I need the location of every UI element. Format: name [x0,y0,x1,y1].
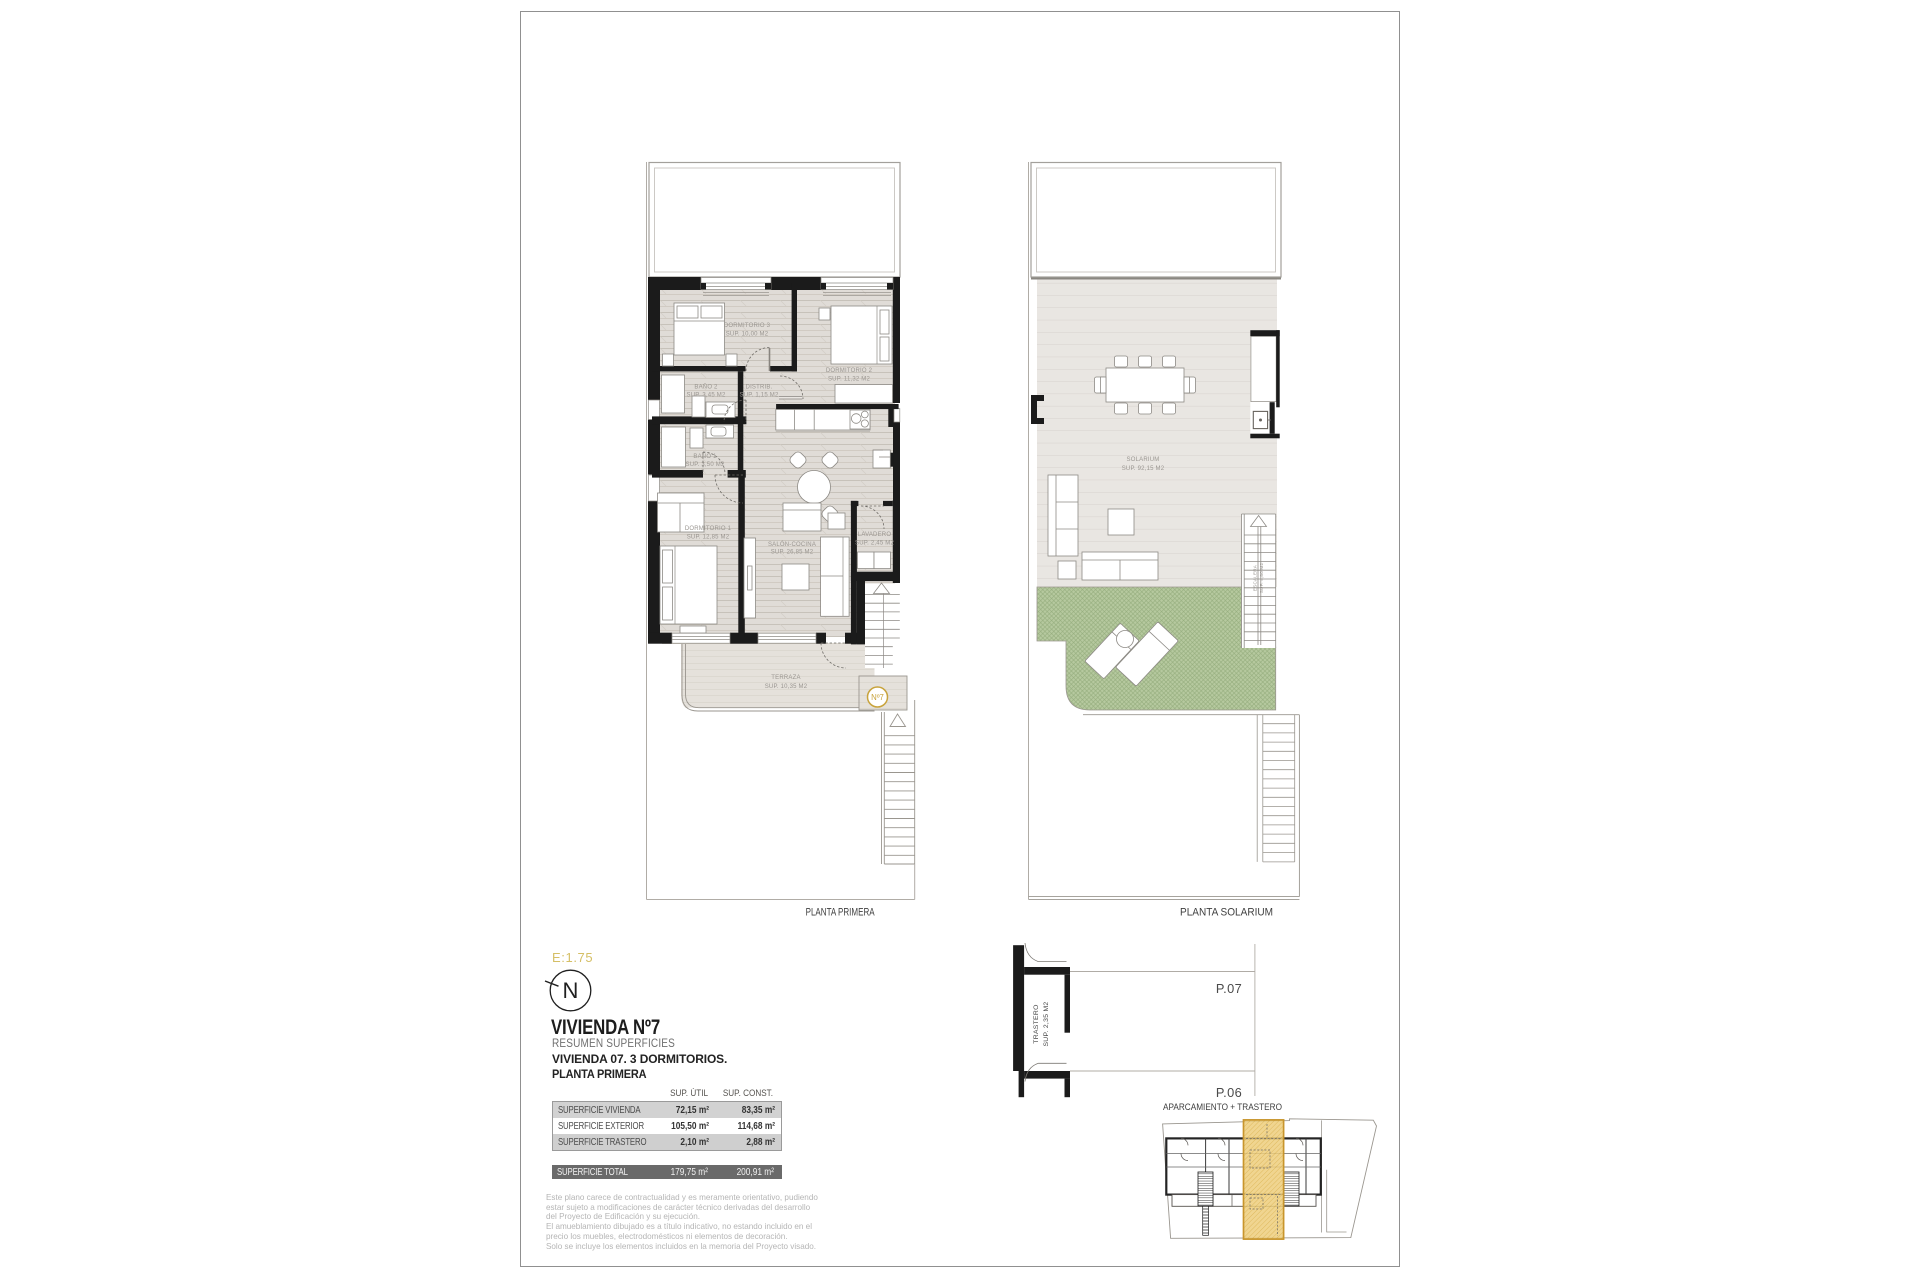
svg-text:SUP. 1,15 M2: SUP. 1,15 M2 [740,393,779,399]
svg-text:SUP. 12,85 M2: SUP. 12,85 M2 [687,535,730,541]
svg-text:Nº7: Nº7 [871,693,884,702]
svg-text:SALÓN-COCINA: SALÓN-COCINA [768,541,816,548]
svg-text:DORMITORIO 3: DORMITORIO 3 [724,323,771,329]
svg-text:LAVADERO: LAVADERO [858,532,892,538]
svg-text:BAÑO 1: BAÑO 1 [693,453,717,460]
svg-text:DORMITORIO 2: DORMITORIO 2 [826,368,873,374]
svg-text:DISTRIB.: DISTRIB. [746,385,773,391]
svg-text:P.07: P.07 [1216,981,1242,996]
svg-text:SUP. 3,45 M2: SUP. 3,45 M2 [687,393,726,399]
svg-text:ESCALERA: ESCALERA [1253,564,1258,591]
svg-text:SUP. 92,15 M2: SUP. 92,15 M2 [1122,466,1165,472]
svg-text:BAÑO 2: BAÑO 2 [694,384,718,391]
svg-text:DORMITORIO 1: DORMITORIO 1 [685,526,732,532]
svg-text:TERRAZA: TERRAZA [771,675,800,681]
svg-text:P.06: P.06 [1216,1085,1242,1100]
svg-text:SUP. 10,35 M2: SUP. 10,35 M2 [765,684,808,690]
svg-text:SUP. 3,50 M2: SUP. 3,50 M2 [686,462,725,468]
svg-text:SOLARIUM: SOLARIUM [1127,457,1160,463]
svg-text:SUP. 10,00 M2: SUP. 10,00 M2 [726,332,769,338]
svg-text:N: N [563,978,579,1003]
svg-text:PLANTA PRIMERA: PLANTA PRIMERA [806,907,876,919]
svg-text:SUP. 2,35 M2: SUP. 2,35 M2 [1043,1001,1050,1046]
svg-text:PLANTA SOLARIUM: PLANTA SOLARIUM [1180,907,1273,919]
svg-text:TRASTERO: TRASTERO [1033,1004,1040,1043]
svg-text:SUP. 4,80 M2: SUP. 4,80 M2 [1259,563,1264,594]
svg-text:SUP. 26,85 M2: SUP. 26,85 M2 [771,550,814,556]
svg-text:SUP. 11,32 M2: SUP. 11,32 M2 [828,377,871,383]
svg-text:SUP. 2,45 M2: SUP. 2,45 M2 [855,541,894,547]
svg-text:APARCAMIENTO + TRASTERO: APARCAMIENTO + TRASTERO [1163,1102,1282,1112]
